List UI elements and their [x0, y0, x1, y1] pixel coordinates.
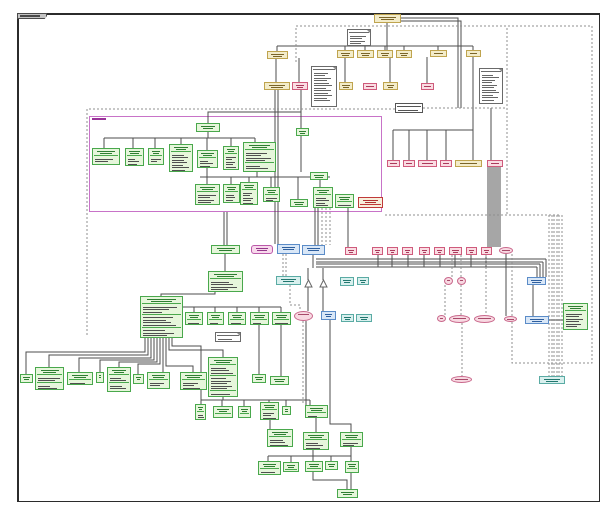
red-ref-box — [358, 197, 383, 208]
pink-type-box — [487, 160, 503, 167]
class-box — [243, 142, 276, 172]
class-box — [258, 461, 281, 475]
pink-type-box — [419, 247, 430, 255]
component-box — [339, 82, 353, 90]
state-ellipse — [504, 316, 517, 322]
class-box — [96, 372, 104, 383]
class-box — [296, 128, 309, 136]
class-box — [282, 406, 291, 415]
class-box — [305, 461, 323, 472]
pink-type-box — [387, 160, 400, 167]
generalization-triangle-icon — [305, 280, 312, 287]
blue-box — [321, 311, 336, 320]
class-box — [223, 146, 239, 170]
class-box — [211, 245, 240, 254]
pink-type-box — [345, 247, 357, 255]
solid-connector — [401, 21, 461, 108]
component-box — [267, 51, 288, 59]
note-box — [215, 332, 241, 342]
class-box — [223, 184, 240, 203]
class-box — [213, 406, 233, 418]
pink-type-box — [418, 160, 437, 167]
cyan-box — [276, 276, 301, 285]
class-box — [195, 184, 220, 205]
class-box — [185, 312, 203, 325]
note-box — [347, 29, 371, 46]
component-box — [337, 50, 354, 58]
class-box — [563, 303, 588, 330]
state-ellipse — [451, 376, 472, 383]
cyan-box — [357, 277, 369, 285]
pink-type-box — [481, 247, 492, 255]
class-box — [340, 432, 363, 447]
class-box — [238, 406, 251, 418]
class-box — [125, 148, 144, 166]
cyan-box — [341, 314, 354, 322]
class-box — [240, 182, 258, 205]
class-box — [345, 461, 359, 473]
class-box — [267, 429, 293, 447]
component-box — [374, 14, 401, 23]
class-box — [303, 432, 329, 450]
solid-connector — [166, 338, 193, 372]
component-box — [396, 50, 412, 58]
solid-connector — [313, 472, 347, 489]
class-box — [325, 461, 338, 470]
state-ellipse — [449, 315, 470, 323]
solid-connector — [401, 18, 458, 108]
class-box — [208, 357, 238, 397]
component-box — [455, 160, 482, 167]
component-box — [466, 50, 481, 57]
class-box — [250, 312, 269, 325]
class-box — [252, 374, 266, 383]
class-box — [272, 312, 291, 325]
pink-type-box — [402, 247, 413, 255]
component-box — [357, 50, 374, 58]
class-box — [67, 372, 93, 385]
pink-type-box — [434, 247, 445, 255]
blue-box — [277, 244, 300, 254]
cyan-box — [340, 277, 354, 286]
generalization-triangle-icon — [320, 280, 327, 287]
white-box — [395, 103, 423, 113]
pink-type-box — [449, 247, 462, 255]
pink-type-box — [387, 247, 398, 255]
rounded-label-box — [251, 245, 273, 254]
class-box — [195, 404, 206, 420]
solid-connector — [172, 338, 201, 404]
cyan-box — [539, 376, 565, 384]
pink-type-box — [440, 160, 452, 167]
class-box — [20, 374, 33, 383]
class-box — [290, 199, 308, 207]
solid-connector — [330, 320, 351, 432]
blue-box — [525, 316, 549, 324]
note-box — [479, 68, 503, 104]
pink-type-box — [363, 83, 377, 90]
class-box — [283, 462, 299, 472]
state-ellipse — [444, 277, 453, 285]
uml-diagram-canvas — [0, 0, 611, 512]
blue-box — [527, 277, 546, 285]
class-box — [305, 405, 328, 418]
pink-type-box — [292, 82, 308, 90]
class-box — [180, 372, 207, 390]
class-box — [207, 312, 224, 325]
class-box — [148, 148, 164, 165]
class-box — [270, 376, 289, 385]
component-box — [430, 50, 447, 57]
state-ellipse — [457, 277, 466, 285]
class-box — [337, 489, 358, 498]
class-box — [107, 367, 131, 392]
class-box — [92, 148, 120, 165]
pink-type-box — [421, 83, 434, 90]
class-box — [196, 123, 220, 132]
class-box — [147, 372, 170, 389]
class-box — [208, 271, 243, 292]
blue-box — [302, 245, 325, 255]
cyan-box — [356, 314, 372, 322]
class-box — [140, 296, 183, 338]
dashed-connector — [290, 285, 300, 311]
component-box — [377, 50, 393, 58]
pink-type-box — [466, 247, 477, 255]
state-ellipse — [499, 247, 513, 254]
state-ellipse — [474, 315, 495, 323]
class-box — [260, 402, 279, 420]
class-box — [313, 187, 333, 208]
class-box — [263, 187, 280, 202]
note-box — [311, 66, 337, 107]
pink-type-box — [372, 247, 383, 255]
state-ellipse — [294, 311, 313, 321]
class-box — [197, 150, 218, 168]
class-box — [228, 312, 246, 325]
class-box — [133, 374, 144, 384]
component-box — [264, 82, 290, 90]
class-box — [169, 144, 193, 172]
state-ellipse — [437, 315, 446, 322]
class-box — [35, 367, 64, 390]
class-box — [335, 194, 354, 208]
class-box — [310, 172, 328, 180]
component-box — [383, 82, 398, 90]
pink-type-box — [403, 160, 415, 167]
solid-connector — [208, 112, 301, 123]
